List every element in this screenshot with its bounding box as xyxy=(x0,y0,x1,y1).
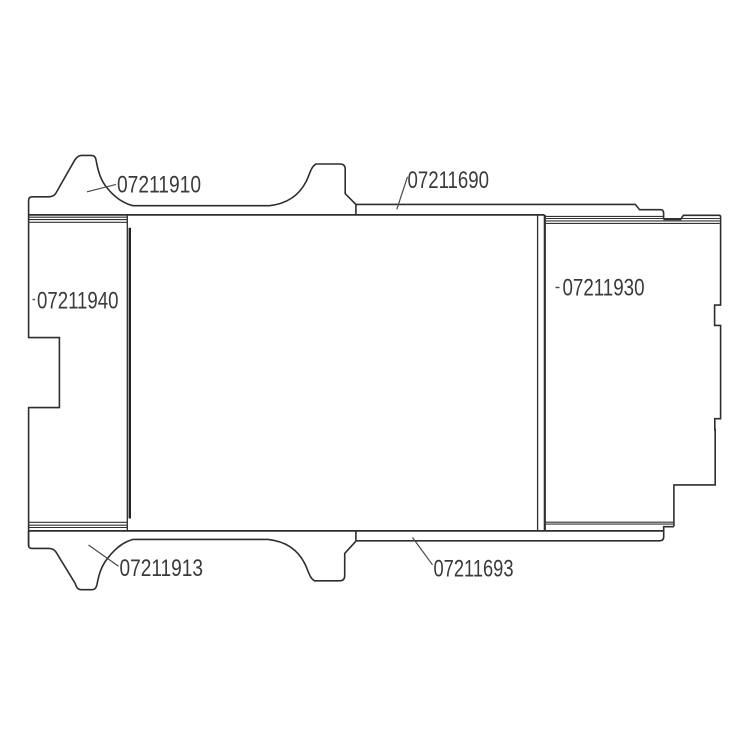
svg-text:07211913: 07211913 xyxy=(120,555,204,582)
svg-text:07211910: 07211910 xyxy=(117,172,201,199)
svg-text:07211693: 07211693 xyxy=(434,555,514,582)
svg-text:07211930: 07211930 xyxy=(563,274,645,301)
svg-text:07211940: 07211940 xyxy=(37,287,119,314)
svg-text:07211690: 07211690 xyxy=(408,167,490,194)
